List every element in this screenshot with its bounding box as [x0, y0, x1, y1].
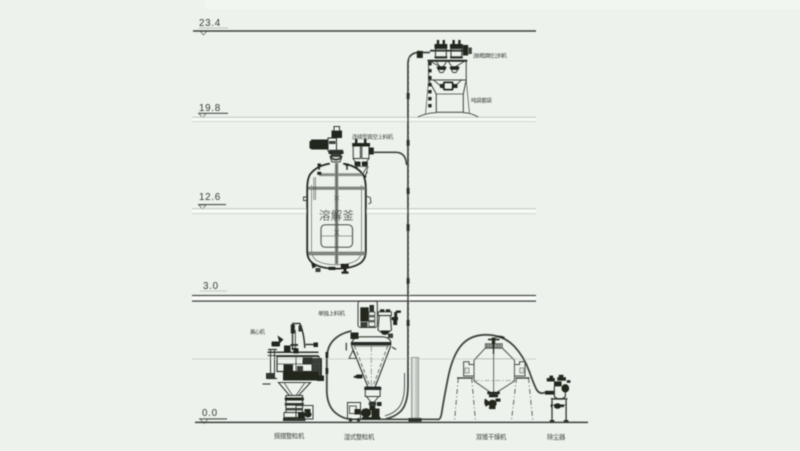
svg-text:0.0: 0.0 [202, 408, 218, 419]
svg-text:溶解釜: 溶解釜 [319, 209, 354, 223]
svg-text:单独上料机: 单独上料机 [318, 310, 345, 318]
svg-text:3.0: 3.0 [203, 281, 219, 292]
svg-text:吨袋套袋: 吨袋套袋 [471, 97, 492, 105]
svg-text:除尘器: 除尘器 [547, 432, 566, 441]
svg-text:双锥干燥机: 双锥干燥机 [476, 432, 507, 441]
svg-text:湿式整粒机: 湿式整粒机 [344, 432, 375, 441]
svg-text:19.8: 19.8 [199, 103, 221, 114]
svg-text:连续型真空上料机: 连续型真空上料机 [473, 52, 508, 60]
svg-text:摇摆整粒机: 摇摆整粒机 [274, 431, 305, 440]
svg-text:连续型真空上料机: 连续型真空上料机 [352, 133, 394, 141]
svg-text:23.4: 23.4 [199, 18, 221, 29]
svg-text:12.6: 12.6 [199, 192, 221, 203]
svg-text:离心机: 离心机 [250, 328, 266, 336]
